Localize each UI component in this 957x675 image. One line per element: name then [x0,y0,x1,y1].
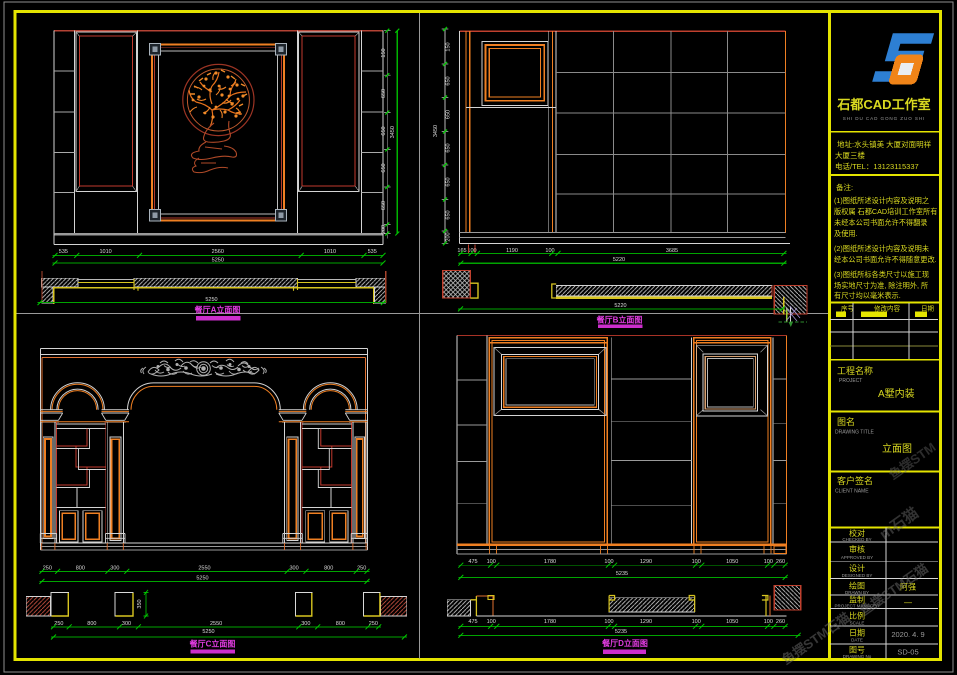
svg-text:绘图: 绘图 [849,581,865,591]
svg-text:电话/TEL：13123115337: 电话/TEL：13123115337 [835,161,919,171]
svg-text:250: 250 [369,621,378,627]
svg-text:260: 260 [776,559,785,565]
svg-text:475: 475 [468,619,477,625]
svg-text:300: 300 [290,565,299,571]
svg-text:1290: 1290 [640,559,652,565]
svg-text:备注:: 备注: [836,182,853,192]
svg-text:2550: 2550 [198,565,210,571]
svg-text:5235: 5235 [615,629,627,635]
svg-text:1050: 1050 [726,619,738,625]
svg-text:3450: 3450 [433,125,439,137]
svg-text:350: 350 [137,599,143,608]
svg-text:100: 100 [545,248,554,254]
svg-text:石都CAD工作室: 石都CAD工作室 [836,97,930,112]
svg-text:未经本公司书面允许不得翻录: 未经本公司书面允许不得翻录 [834,218,927,227]
svg-text:CLIENT NAME: CLIENT NAME [835,489,869,495]
svg-text:250: 250 [54,621,63,627]
svg-text:200: 200 [381,225,387,234]
svg-text:150: 150 [445,42,451,51]
svg-text:5235: 5235 [616,571,628,577]
svg-text:200: 200 [445,232,451,241]
svg-text:650: 650 [381,201,387,210]
svg-text:2550: 2550 [210,621,222,627]
svg-text:2560: 2560 [212,249,224,255]
svg-text:800: 800 [76,565,85,571]
svg-text:650: 650 [445,210,451,219]
svg-text:5220: 5220 [614,303,626,309]
svg-text:DRAWING No: DRAWING No [843,654,872,659]
svg-text:650: 650 [381,126,387,135]
svg-text:大厦三楼: 大厦三楼 [835,150,865,160]
svg-text:3685: 3685 [666,248,678,254]
svg-text:(2)图纸所述设计内容及说明未: (2)图纸所述设计内容及说明未 [834,244,929,253]
svg-text:1290: 1290 [640,619,652,625]
svg-text:5250: 5250 [196,576,208,582]
svg-text:5250: 5250 [205,297,217,303]
svg-text:1780: 1780 [544,619,556,625]
svg-text:A墅内装: A墅内装 [878,387,915,400]
svg-text:250: 250 [357,565,366,571]
svg-text:100: 100 [604,619,613,625]
svg-text:260: 260 [776,619,785,625]
svg-text:535: 535 [59,249,68,255]
svg-text:650: 650 [445,110,451,119]
svg-text:审核: 审核 [849,544,865,554]
svg-text:475: 475 [468,559,477,565]
svg-text:图名: 图名 [837,416,855,427]
svg-text:800: 800 [87,621,96,627]
svg-text:650: 650 [445,177,451,186]
svg-text:客户签名: 客户签名 [837,475,873,486]
svg-text:及使用.: 及使用. [834,229,858,238]
svg-text:250: 250 [43,565,52,571]
svg-text:1780: 1780 [544,559,556,565]
svg-text:100: 100 [692,619,701,625]
svg-text:100: 100 [764,619,773,625]
svg-text:有尺寸均以毫米表示.: 有尺寸均以毫米表示. [834,291,901,300]
svg-text:餐厅D立面图: 餐厅D立面图 [601,638,648,648]
svg-text:150: 150 [381,48,387,57]
svg-text:650: 650 [381,163,387,172]
svg-text:CHECKED BY: CHECKED BY [842,537,871,542]
svg-text:3450: 3450 [390,126,396,138]
svg-text:650: 650 [381,89,387,98]
svg-text:800: 800 [324,565,333,571]
svg-text:1050: 1050 [726,559,738,565]
svg-text:2020. 4. 9: 2020. 4. 9 [891,630,924,639]
svg-text:1010: 1010 [99,249,111,255]
svg-text:650: 650 [445,76,451,85]
svg-text:(1)图纸所述设计内容及说明之: (1)图纸所述设计内容及说明之 [834,196,929,205]
svg-text:DRAWN BY: DRAWN BY [845,590,869,595]
svg-text:DRAWING TITLE: DRAWING TITLE [835,430,875,436]
svg-text:SHI DU CAD GONG ZUO SHI: SHI DU CAD GONG ZUO SHI [843,116,925,121]
svg-text:餐厅A立面图: 餐厅A立面图 [194,304,241,314]
svg-text:餐厅B立面图: 餐厅B立面图 [596,314,643,324]
svg-text:日期: 日期 [921,305,935,313]
svg-text:SD-05: SD-05 [897,648,918,657]
svg-text:800: 800 [336,621,345,627]
svg-text:修改内容: 修改内容 [874,304,901,313]
svg-text:300: 300 [122,621,131,627]
svg-text:100: 100 [487,619,496,625]
svg-text:1010: 1010 [324,249,336,255]
svg-text:—: — [904,598,912,607]
svg-text:场实地尺寸为准, 除注明外, 所: 场实地尺寸为准, 除注明外, 所 [834,281,928,290]
svg-text:300: 300 [110,565,119,571]
svg-text:地址:水头镇美 大厦对面明祥: 地址:水头镇美 大厦对面明祥 [837,139,932,149]
svg-text:5220: 5220 [613,257,625,263]
svg-text:DATE: DATE [851,638,863,643]
svg-text:餐厅C立面图: 餐厅C立面图 [189,639,236,649]
svg-text:版权属 石都CAD培训工作室所有: 版权属 石都CAD培训工作室所有 [834,207,937,216]
svg-text:535: 535 [368,249,377,255]
svg-text:1190: 1190 [506,248,518,254]
svg-text:650: 650 [445,143,451,152]
svg-text:经本公司书面允许不得随意更改.: 经本公司书面允许不得随意更改. [834,255,937,264]
svg-text:DESIGNED BY: DESIGNED BY [842,573,873,578]
svg-text:立面图: 立面图 [882,442,912,455]
svg-text:设计: 设计 [849,563,865,573]
svg-text:5250: 5250 [202,629,214,635]
svg-text:300: 300 [301,621,310,627]
svg-text:PROJECT: PROJECT [839,378,862,384]
svg-text:(3)图纸所标各类尺寸以施工现: (3)图纸所标各类尺寸以施工现 [834,270,929,279]
svg-text:工程名称: 工程名称 [837,365,873,376]
svg-text:日期: 日期 [849,629,865,638]
svg-text:APPROVED BY: APPROVED BY [841,555,873,560]
